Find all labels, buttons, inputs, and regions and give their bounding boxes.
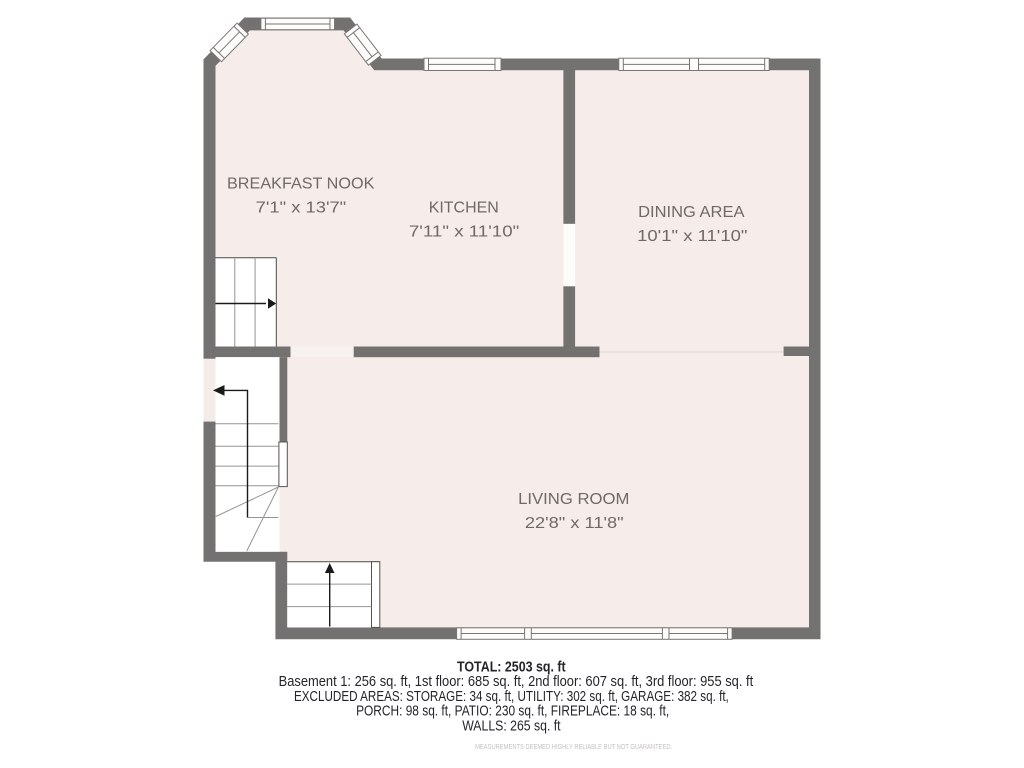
svg-text:BREAKFAST NOOK: BREAKFAST NOOK xyxy=(227,176,375,193)
svg-text:Basement 1: 256 sq. ft, 1st fl: Basement 1: 256 sq. ft, 1st floor: 685 s… xyxy=(279,674,754,690)
svg-text:7'1" x 13'7": 7'1" x 13'7" xyxy=(256,199,347,216)
svg-text:LIVING ROOM: LIVING ROOM xyxy=(518,491,629,508)
svg-text:EXCLUDED AREAS: STORAGE: 34 sq: EXCLUDED AREAS: STORAGE: 34 sq. ft, UTIL… xyxy=(294,689,729,705)
svg-text:TOTAL: 2503 sq. ft: TOTAL: 2503 sq. ft xyxy=(457,660,566,676)
svg-text:7'11" x 11'10": 7'11" x 11'10" xyxy=(409,223,519,240)
svg-text:MEASUREMENTS DEEMED HIGHLY REL: MEASUREMENTS DEEMED HIGHLY RELIABLE BUT … xyxy=(475,742,672,751)
svg-text:WALLS: 265 sq. ft: WALLS: 265 sq. ft xyxy=(462,718,560,734)
svg-text:KITCHEN: KITCHEN xyxy=(429,200,499,217)
svg-text:22'8" x 11'8": 22'8" x 11'8" xyxy=(525,515,624,532)
svg-text:PORCH: 98 sq. ft, PATIO: 230 s: PORCH: 98 sq. ft, PATIO: 230 sq. ft, FIR… xyxy=(356,704,669,720)
svg-text:10'1" x 11'10": 10'1" x 11'10" xyxy=(637,228,747,245)
svg-text:DINING AREA: DINING AREA xyxy=(638,204,745,221)
